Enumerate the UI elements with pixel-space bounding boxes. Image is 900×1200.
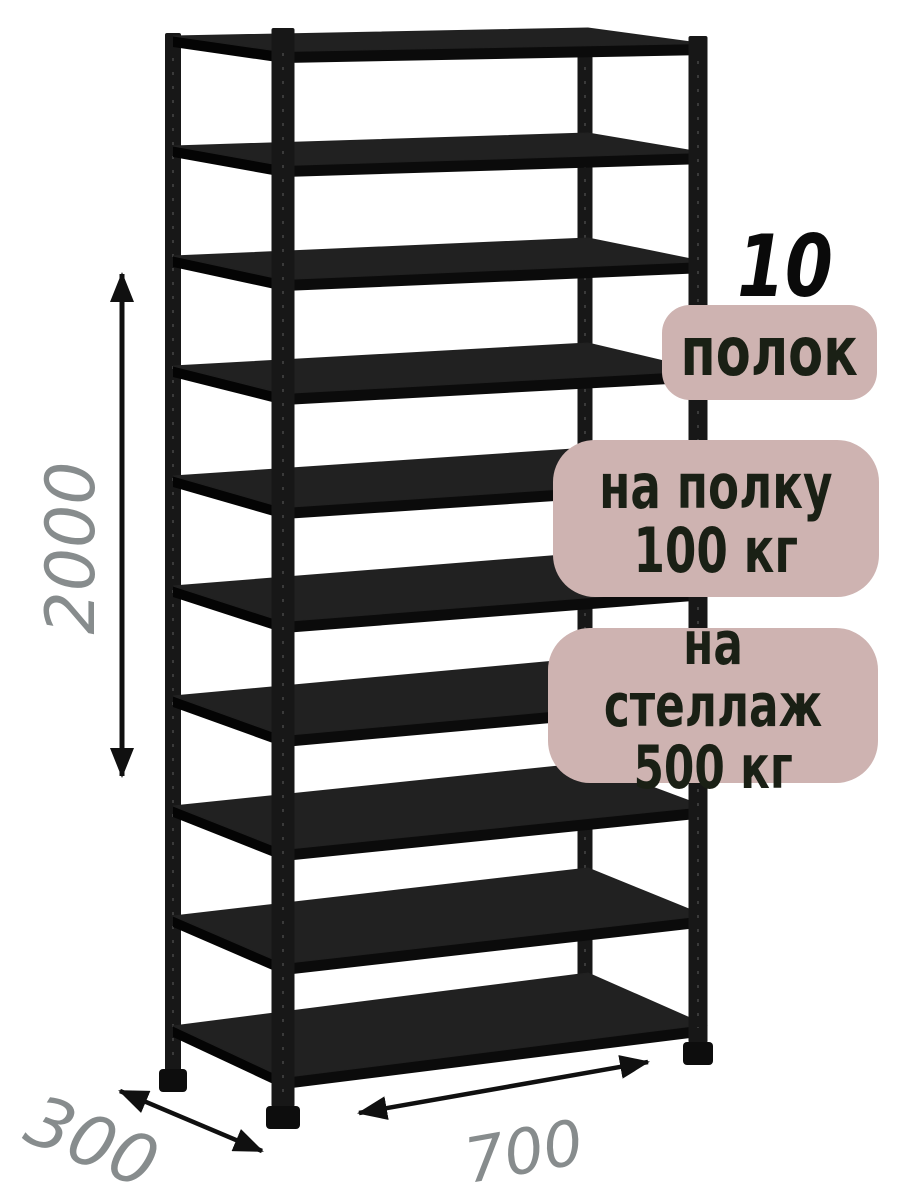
product-image: 2000 300 700 10 полок на полку 100 кг на…: [0, 0, 900, 1200]
height-dimension-label: 2000: [38, 461, 106, 634]
shelf-count-label: полок: [681, 319, 858, 387]
shelf-load-text-line1: на полку: [599, 455, 832, 519]
rack-foot: [683, 1042, 713, 1065]
rack-load-badge: на стеллаж 500 кг: [548, 628, 878, 783]
rack-post: [272, 28, 295, 1107]
shelf-load-badge: на полку 100 кг: [553, 440, 879, 597]
rack-foot: [159, 1069, 187, 1092]
shelf-count-number: 10: [717, 224, 853, 310]
shelf-count-badge: полок: [662, 305, 877, 400]
rack-load-text-line1: на стеллаж: [593, 613, 834, 737]
rack-load-text-line2: 500 кг: [633, 737, 792, 799]
rack-illustration: [0, 0, 900, 1200]
shelf-load-text-line2: 100 кг: [634, 519, 799, 583]
width-dimension-label: 700: [460, 1111, 587, 1193]
rack-foot: [266, 1106, 300, 1129]
